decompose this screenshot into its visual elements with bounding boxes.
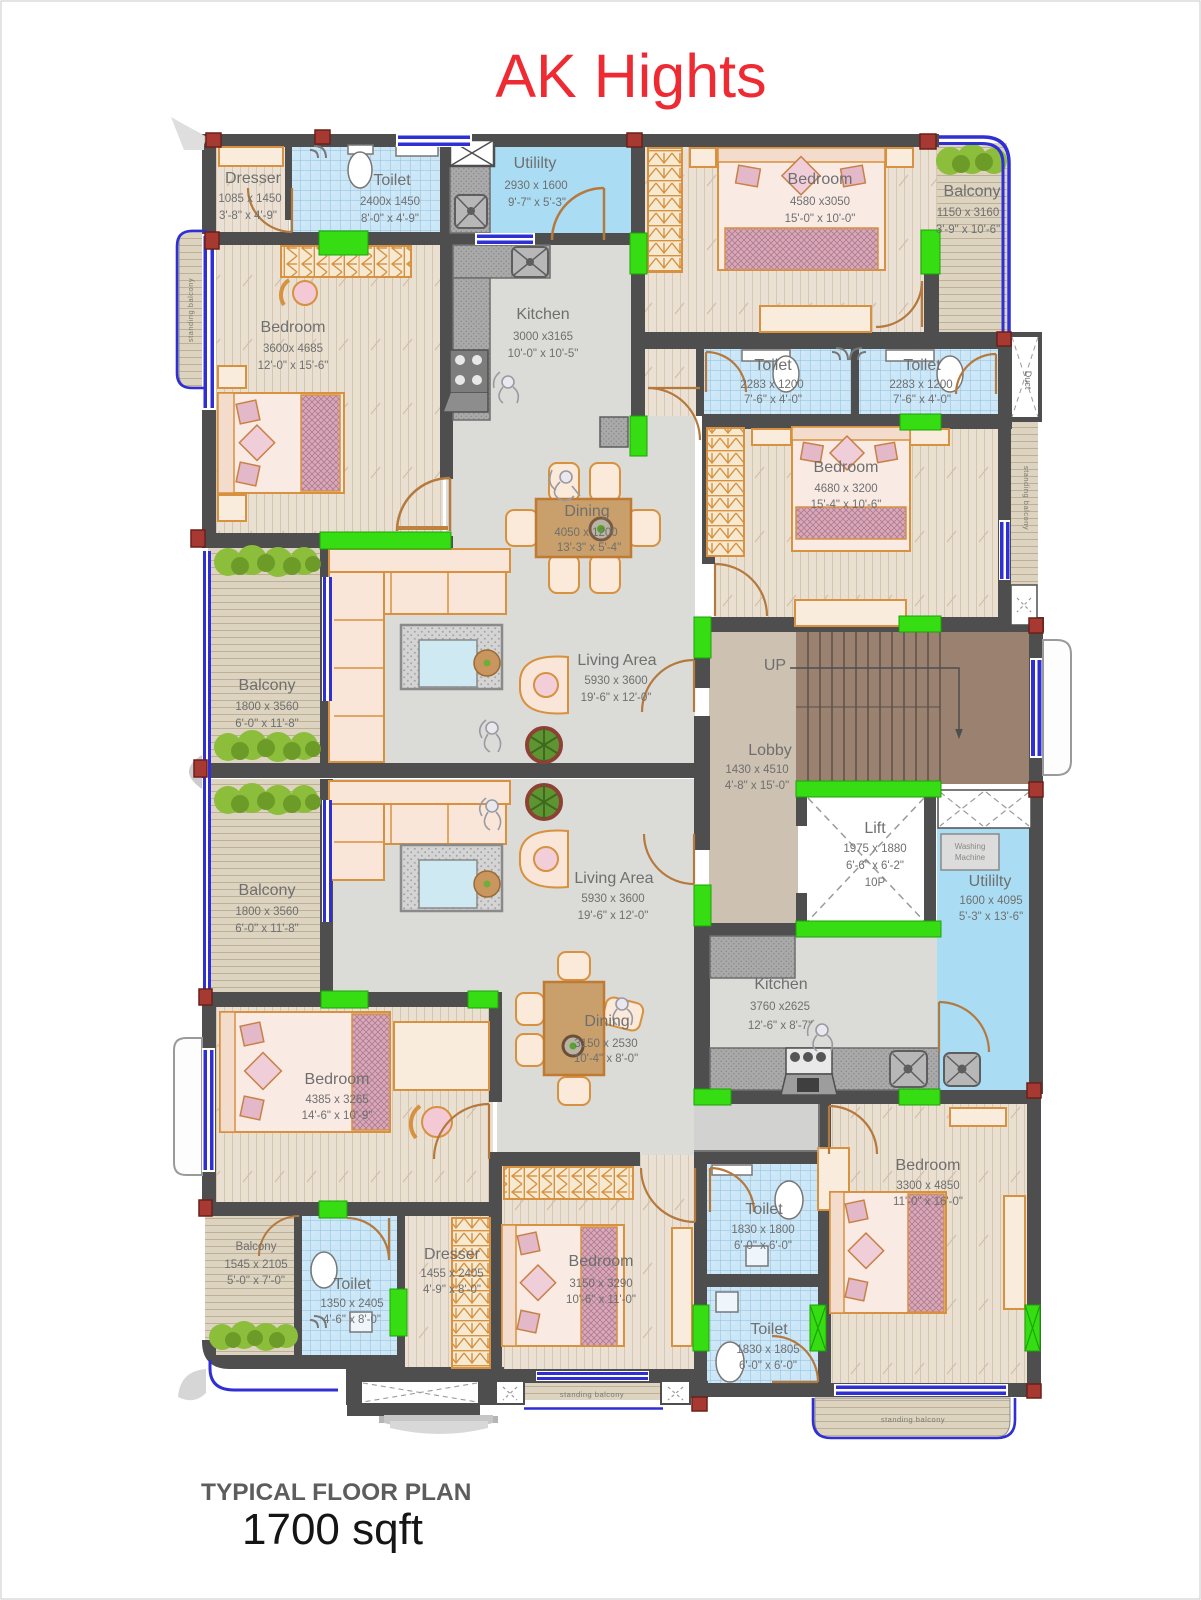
svg-text:3150 x 2530: 3150 x 2530 — [574, 1038, 637, 1050]
svg-text:2283 x 1200: 2283 x 1200 — [889, 379, 952, 391]
svg-text:1700 sqft: 1700 sqft — [242, 1505, 423, 1554]
svg-text:Living Area: Living Area — [577, 652, 656, 669]
svg-text:5'-0" x 7'-0": 5'-0" x 7'-0" — [227, 1275, 285, 1287]
svg-text:standing balcony: standing balcony — [881, 1415, 945, 1424]
svg-text:15'-4" x 10'-6": 15'-4" x 10'-6" — [811, 499, 882, 511]
svg-text:1600 x 4095: 1600 x 4095 — [959, 895, 1022, 907]
svg-text:Bedroom: Bedroom — [569, 1253, 634, 1270]
svg-text:9'-7" x 5'-3": 9'-7" x 5'-3" — [508, 197, 566, 209]
svg-text:10'-4" x 8'-0": 10'-4" x 8'-0" — [574, 1053, 638, 1065]
svg-text:Toilet: Toilet — [745, 1201, 783, 1218]
svg-text:6'-0" x 6'-0": 6'-0" x 6'-0" — [739, 1360, 797, 1372]
svg-text:2400x 1450: 2400x 1450 — [360, 196, 420, 208]
svg-text:4'-6" x 8'-0": 4'-6" x 8'-0" — [323, 1314, 381, 1326]
svg-text:3600x 4685: 3600x 4685 — [263, 343, 323, 355]
svg-text:3'-8" x 4'-9": 3'-8" x 4'-9" — [219, 210, 277, 222]
svg-text:15'-0" x 10'-0": 15'-0" x 10'-0" — [785, 213, 856, 225]
svg-text:1455 x 2405: 1455 x 2405 — [420, 1268, 483, 1280]
svg-text:3150 x 3290: 3150 x 3290 — [569, 1278, 632, 1290]
svg-text:Dining: Dining — [584, 1013, 629, 1030]
svg-text:14'-6" x 10'-9": 14'-6" x 10'-9" — [302, 1110, 373, 1122]
svg-text:AK Hights: AK Hights — [495, 42, 766, 110]
svg-text:Kitchen: Kitchen — [516, 306, 569, 323]
svg-text:1800 x 3560: 1800 x 3560 — [235, 906, 298, 918]
svg-text:Bedroom: Bedroom — [305, 1071, 370, 1088]
svg-text:12'-0" x 15'-6": 12'-0" x 15'-6" — [258, 360, 329, 372]
svg-text:7'-6" x 4'-0": 7'-6" x 4'-0" — [744, 394, 802, 406]
svg-text:3000 x3165: 3000 x3165 — [513, 331, 573, 343]
svg-text:Duct: Duct — [1023, 371, 1033, 390]
svg-text:Lobby: Lobby — [748, 742, 792, 759]
svg-text:1350 x 2405: 1350 x 2405 — [320, 1298, 383, 1310]
svg-text:Toilet: Toilet — [333, 1276, 371, 1293]
svg-text:Kitchen: Kitchen — [754, 976, 807, 993]
svg-text:6'-0" x 11'-8": 6'-0" x 11'-8" — [235, 923, 298, 935]
svg-text:2930 x 1600: 2930 x 1600 — [504, 180, 567, 192]
svg-text:Dining: Dining — [564, 503, 609, 520]
svg-text:Balcony: Balcony — [239, 882, 296, 899]
svg-text:Machine: Machine — [955, 853, 986, 862]
svg-text:6'-6" x 6'-2": 6'-6" x 6'-2" — [846, 860, 904, 872]
svg-text:6'-0" x 11'-8": 6'-0" x 11'-8" — [235, 718, 298, 730]
svg-text:19'-6" x 12'-0": 19'-6" x 12'-0" — [578, 910, 649, 922]
svg-text:6'-0" x 6'-0": 6'-0" x 6'-0" — [734, 1240, 792, 1252]
svg-text:standing balcony: standing balcony — [186, 278, 195, 342]
svg-text:2283 x 1200: 2283 x 1200 — [740, 379, 803, 391]
svg-text:Bedroom: Bedroom — [261, 319, 326, 336]
svg-text:10'-0" x 10'-5": 10'-0" x 10'-5" — [508, 348, 579, 360]
svg-text:Dresser: Dresser — [424, 1246, 481, 1263]
svg-text:Balcony: Balcony — [236, 1241, 277, 1253]
svg-text:5930 x 3600: 5930 x 3600 — [581, 893, 644, 905]
svg-text:11'-0" x 16'-0": 11'-0" x 16'-0" — [893, 1196, 963, 1208]
svg-text:3'-9" x 10'-6": 3'-9" x 10'-6" — [936, 224, 1000, 236]
svg-text:1545 x 2105: 1545 x 2105 — [224, 1259, 287, 1271]
svg-text:4'-9" x 8'-0": 4'-9" x 8'-0" — [423, 1284, 481, 1296]
svg-text:Bedroom: Bedroom — [788, 171, 853, 188]
svg-text:3760 x2625: 3760 x2625 — [750, 1001, 810, 1013]
svg-text:Toilet: Toilet — [903, 357, 941, 374]
svg-text:Toilet: Toilet — [750, 1321, 788, 1338]
svg-text:Toilet: Toilet — [754, 357, 792, 374]
svg-text:Lift: Lift — [864, 820, 886, 837]
svg-text:Bedroom: Bedroom — [814, 459, 879, 476]
svg-text:1800 x 3560: 1800 x 3560 — [235, 701, 298, 713]
svg-text:Dresser: Dresser — [225, 170, 282, 187]
svg-text:Balcony: Balcony — [944, 183, 1001, 200]
svg-text:1085 x 1450: 1085 x 1450 — [218, 193, 281, 205]
svg-text:1830 x 1805: 1830 x 1805 — [736, 1344, 799, 1356]
svg-text:10'-6" x 11'-0": 10'-6" x 11'-0" — [566, 1294, 636, 1306]
svg-text:Balcony: Balcony — [239, 677, 296, 694]
svg-text:Toilet: Toilet — [373, 172, 411, 189]
svg-text:8'-0" x 4'-9": 8'-0" x 4'-9" — [361, 213, 419, 225]
svg-text:5'-3" x 13'-6": 5'-3" x 13'-6" — [959, 911, 1023, 923]
svg-text:1830 x 1800: 1830 x 1800 — [731, 1224, 794, 1236]
svg-text:4050 x 1200: 4050 x 1200 — [554, 527, 617, 539]
svg-text:4'-8" x 15'-0": 4'-8" x 15'-0" — [725, 780, 789, 792]
svg-text:3300 x 4850: 3300 x 4850 — [896, 1180, 959, 1192]
svg-text:19'-6" x 12'-0": 19'-6" x 12'-0" — [581, 692, 652, 704]
svg-text:standing balcony: standing balcony — [1022, 466, 1031, 530]
svg-text:standing balcony: standing balcony — [560, 1390, 624, 1399]
svg-text:12'-6" x 8'-7": 12'-6" x 8'-7" — [748, 1020, 812, 1032]
svg-text:Living Area: Living Area — [574, 870, 653, 887]
svg-text:Bedroom: Bedroom — [896, 1157, 961, 1174]
svg-text:4580 x3050: 4580 x3050 — [790, 196, 850, 208]
svg-text:4385 x 3265: 4385 x 3265 — [305, 1094, 368, 1106]
svg-text:1150 x 3160: 1150 x 3160 — [937, 207, 999, 219]
svg-text:4680 x 3200: 4680 x 3200 — [814, 483, 877, 495]
svg-text:Utililty: Utililty — [514, 155, 557, 172]
svg-text:13'-3" x 5'-4": 13'-3" x 5'-4" — [557, 542, 621, 554]
svg-text:1975 x 1880: 1975 x 1880 — [843, 843, 906, 855]
svg-text:Washing: Washing — [955, 842, 986, 851]
svg-text:10P: 10P — [865, 877, 886, 889]
svg-text:TYPICAL FLOOR PLAN: TYPICAL FLOOR PLAN — [201, 1479, 471, 1506]
svg-text:5930 x 3600: 5930 x 3600 — [584, 675, 647, 687]
svg-text:Utililty: Utililty — [969, 873, 1012, 890]
svg-text:7'-6" x 4'-0": 7'-6" x 4'-0" — [893, 394, 951, 406]
svg-text:UP: UP — [764, 657, 786, 674]
svg-text:1430 x 4510: 1430 x 4510 — [725, 764, 788, 776]
